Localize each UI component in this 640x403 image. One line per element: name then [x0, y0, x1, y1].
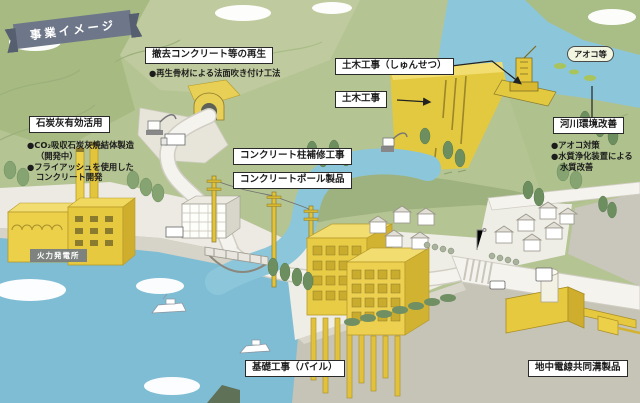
- label-aoko: アオコ等: [567, 46, 614, 62]
- label-coal-ash: 石炭灰有効活用: [29, 116, 110, 133]
- recycle-bullets: ●再生骨材による法面吹き付け工法: [149, 68, 280, 79]
- business-image-diagram: 事業イメージ 撤去コンクリート等の再生 ●再生骨材による法面吹き付け工法 土木工…: [0, 0, 640, 403]
- truck: [166, 227, 183, 237]
- label-underground-duct: 地中電線共同溝製品: [528, 360, 628, 377]
- label-river-improvement: 河川環境改善: [553, 117, 624, 134]
- coal-ash-bullets: ●CO₂吸収石炭灰焼結体製造 （開発中） ●フライアッシュを使用した コンクリー…: [27, 140, 134, 183]
- label-pole-repair: コンクリート柱補修工事: [233, 148, 352, 165]
- power-plant-badge: 火力発電所: [30, 249, 87, 262]
- label-pole-products: コンクリートポール製品: [233, 172, 352, 189]
- dump-truck: [161, 134, 185, 145]
- car: [490, 281, 505, 289]
- van: [536, 268, 552, 281]
- substation-building: [182, 196, 240, 238]
- label-recycle-concrete: 撤去コンクリート等の再生: [145, 47, 273, 64]
- river-bullets: ●アオコ対策 ●水質浄化装置による 水質改善: [551, 140, 633, 172]
- scene-illustration: [0, 0, 640, 403]
- label-civil-works: 土木工事: [335, 91, 387, 108]
- label-civil-dredging: 土木工事（しゅんせつ）: [335, 58, 454, 75]
- label-foundation-piles: 基礎工事（パイル）: [245, 360, 345, 377]
